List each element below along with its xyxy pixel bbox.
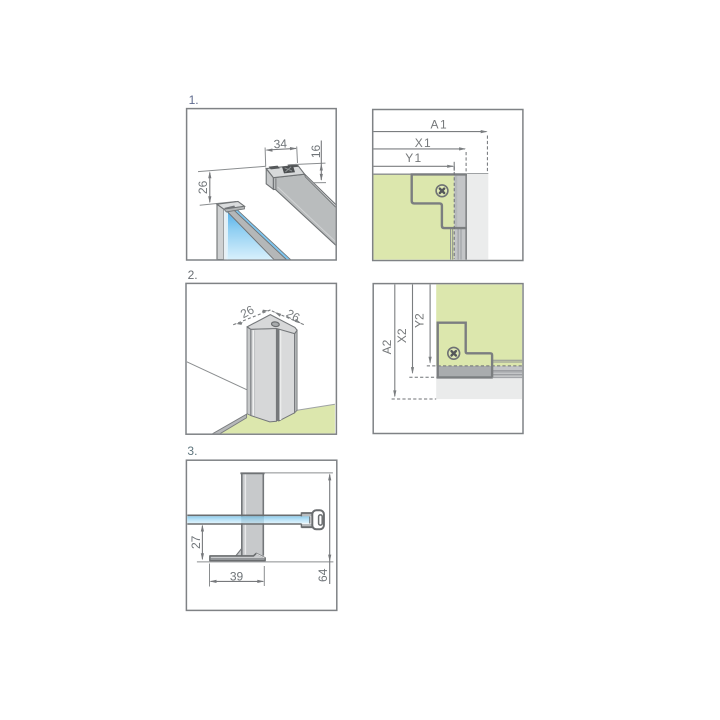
svg-text:2.: 2. [188,268,198,282]
svg-text:Y1: Y1 [405,151,422,165]
svg-text:34: 34 [273,137,287,152]
svg-text:39: 39 [230,569,244,583]
svg-text:16: 16 [309,145,323,159]
svg-text:26: 26 [196,180,210,194]
svg-text:A2: A2 [380,339,394,354]
svg-text:Y2: Y2 [412,313,426,328]
svg-text:27: 27 [189,535,203,549]
svg-text:26: 26 [238,302,257,321]
svg-text:A1: A1 [431,118,448,132]
svg-text:1.: 1. [189,93,199,107]
svg-text:64: 64 [316,568,330,582]
svg-text:X1: X1 [415,136,432,150]
svg-text:X2: X2 [395,328,409,343]
svg-text:3.: 3. [187,444,197,458]
